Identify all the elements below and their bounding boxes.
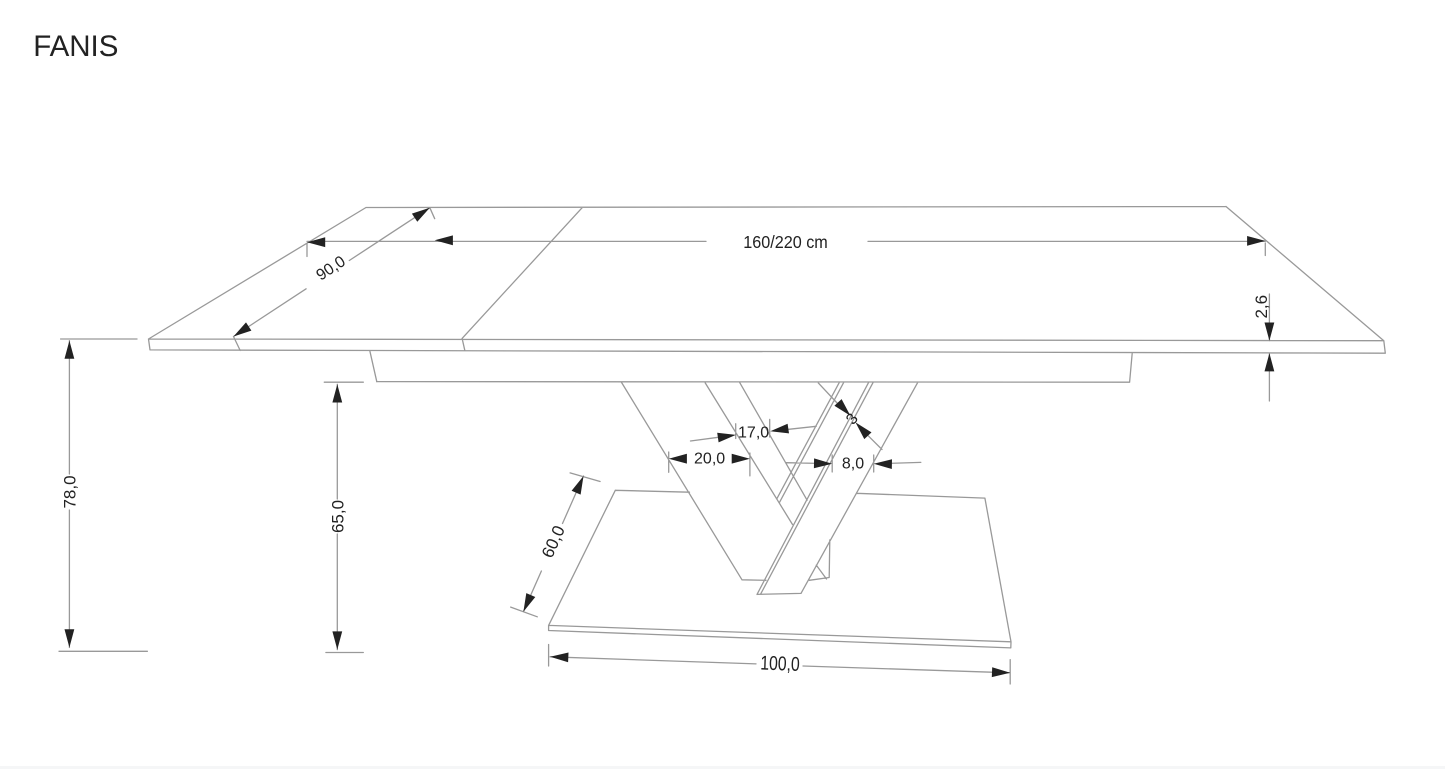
svg-text:160/220 cm: 160/220 cm: [743, 232, 828, 252]
svg-text:78,0: 78,0: [60, 475, 79, 508]
svg-text:100,0: 100,0: [760, 653, 800, 676]
svg-text:2,6: 2,6: [1252, 295, 1271, 319]
svg-text:17,0: 17,0: [738, 425, 769, 442]
svg-text:65,0: 65,0: [329, 500, 348, 533]
svg-text:20,0: 20,0: [694, 451, 725, 468]
svg-text:FANIS: FANIS: [33, 30, 118, 63]
svg-text:8,0: 8,0: [842, 455, 864, 472]
